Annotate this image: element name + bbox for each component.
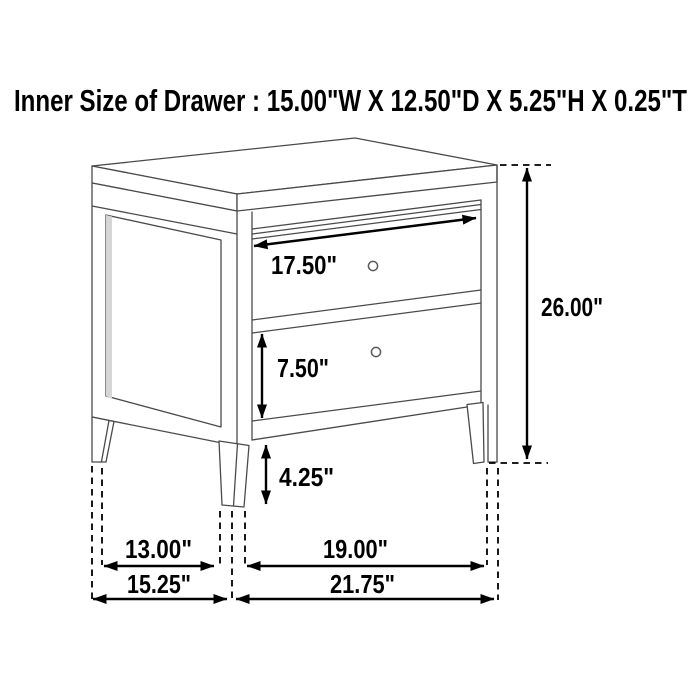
dim-depth-between-legs: 13.00" — [104, 534, 214, 566]
diagram-svg: Inner Size of Drawer : 15.00"W X 12.50"D… — [0, 0, 700, 700]
dim-label-depth-between-legs: 13.00" — [125, 534, 192, 564]
dim-label-lower-drawer-height: 7.50" — [277, 353, 329, 383]
dim-label-width-between-legs: 19.00" — [323, 534, 388, 564]
dim-overall-width: 21.75" — [236, 569, 494, 599]
dim-label-overall-height: 26.00" — [541, 292, 603, 322]
front-apron-bottom-edge — [252, 407, 467, 440]
dim-label-leg-clearance: 4.25" — [279, 462, 334, 492]
dim-label-overall-depth: 15.25" — [127, 569, 191, 599]
nightstand-drawing — [92, 138, 497, 507]
drawer-lip-line-2 — [252, 205, 481, 235]
dim-width-between-legs: 19.00" — [247, 534, 484, 566]
front-right-leg — [467, 403, 484, 464]
dim-overall-depth: 15.25" — [93, 569, 227, 599]
dim-leg-clearance: 4.25" — [266, 445, 334, 504]
dim-lower-drawer-height: 7.50" — [262, 334, 329, 418]
page-title: Inner Size of Drawer : 15.00"W X 12.50"D… — [14, 83, 687, 118]
dim-label-drawer-width: 17.50" — [271, 250, 337, 280]
dimension-diagram: Inner Size of Drawer : 15.00"W X 12.50"D… — [0, 0, 700, 700]
top-drawer-bottom-edge — [252, 290, 481, 320]
side-panel-shadow — [106, 215, 112, 399]
back-left-leg — [92, 417, 114, 462]
side-recessed-panel — [106, 215, 221, 427]
dim-label-overall-width: 21.75" — [330, 569, 395, 599]
dim-overall-height: 26.00" — [527, 168, 603, 459]
back-right-leg — [488, 405, 497, 462]
bottom-drawer-knob — [371, 347, 380, 356]
bottom-drawer-bottom-edge — [252, 391, 481, 421]
top-drawer-knob — [368, 261, 377, 270]
front-left-leg — [219, 441, 249, 507]
bottom-drawer-top-edge — [252, 303, 481, 333]
dim-drawer-width: 17.50" — [254, 218, 476, 280]
